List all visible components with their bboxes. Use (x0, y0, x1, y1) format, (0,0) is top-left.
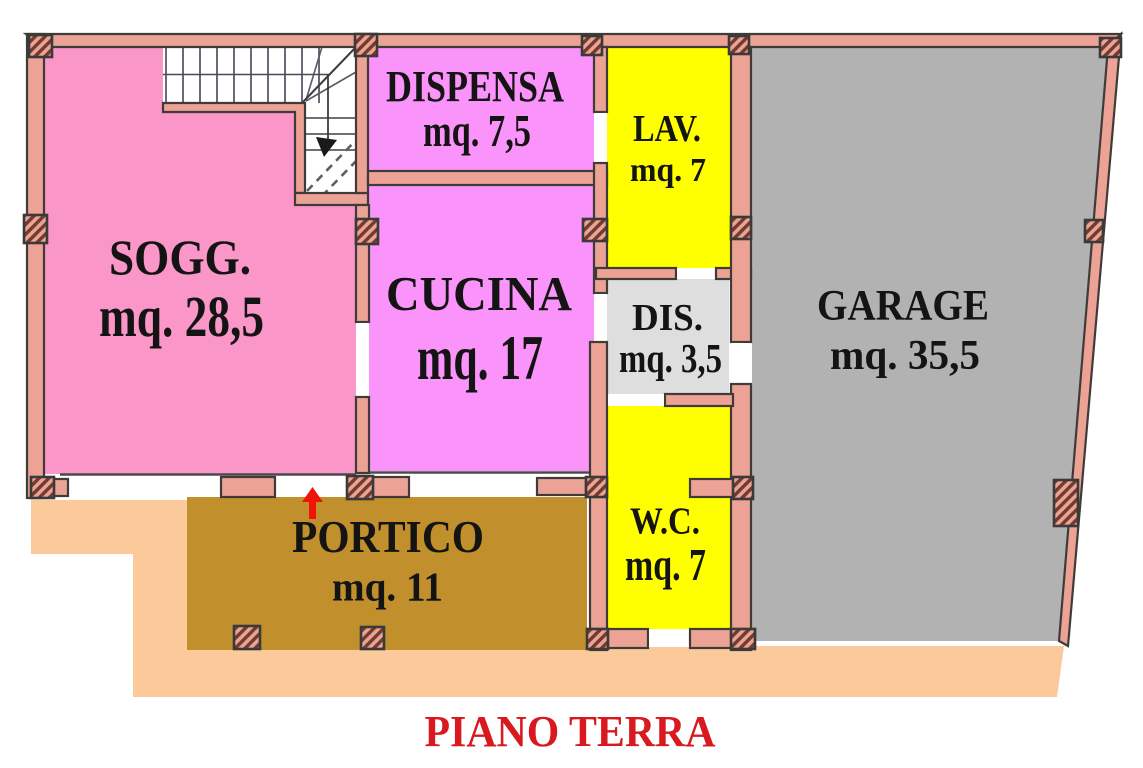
svg-text:DISPENSA: DISPENSA (386, 62, 564, 111)
svg-text:mq. 28,5: mq. 28,5 (99, 284, 264, 349)
svg-text:SOGG.: SOGG. (109, 229, 251, 285)
svg-text:mq. 35,5: mq. 35,5 (830, 333, 980, 379)
svg-text:mq. 7,5: mq. 7,5 (423, 106, 531, 156)
svg-text:GARAGE: GARAGE (817, 283, 989, 330)
svg-text:LAV.: LAV. (633, 108, 701, 150)
svg-text:mq. 17: mq. 17 (417, 323, 543, 393)
svg-text:mq. 7: mq. 7 (625, 540, 706, 590)
svg-text:DIS.: DIS. (632, 297, 703, 339)
svg-text:PIANO TERRA: PIANO TERRA (425, 707, 716, 756)
svg-text:mq. 7: mq. 7 (630, 152, 706, 189)
svg-text:W.C.: W.C. (630, 501, 700, 543)
svg-text:CUCINA: CUCINA (386, 266, 573, 321)
svg-text:PORTICO: PORTICO (292, 511, 484, 562)
svg-text:mq. 11: mq. 11 (332, 564, 443, 610)
svg-text:mq. 3,5: mq. 3,5 (619, 335, 722, 381)
